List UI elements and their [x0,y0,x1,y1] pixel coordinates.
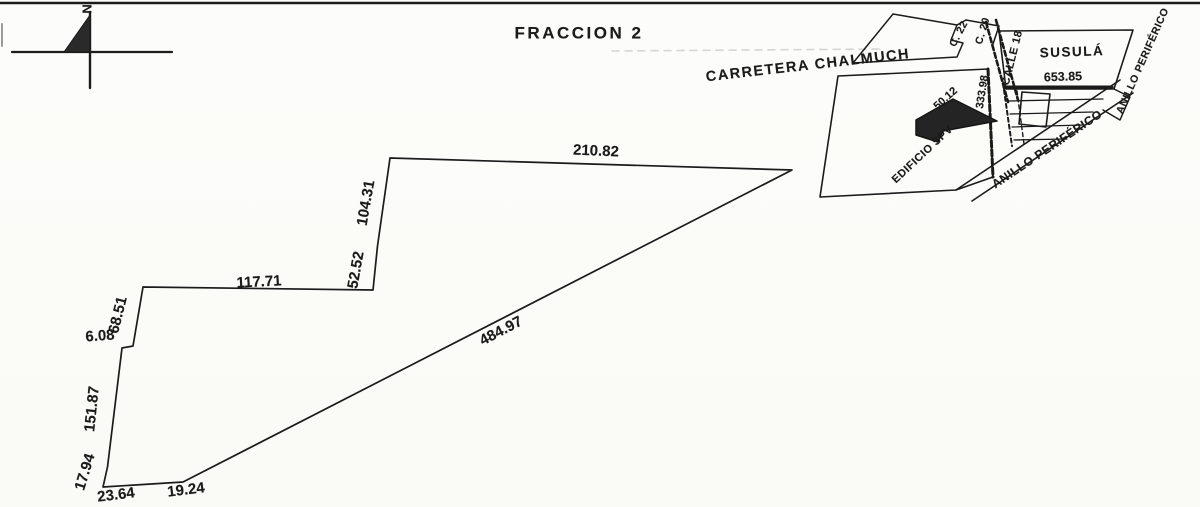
measurement-west-shelf: 117.71 [236,273,282,290]
measurement-north: 210.82 [573,143,620,160]
inset-inner-block [1019,92,1050,127]
measurement-west-jog: 6.08 [85,327,115,344]
dimension-susula-frontage: 653.85 [1044,70,1083,84]
page-title: FRACCION 2 [515,25,644,42]
north-arrow-head [64,15,90,52]
place-label-susula: SUSULÁ [1040,44,1105,60]
north-label: N [81,4,94,13]
scan-smudge-line [612,49,882,51]
survey-plan-sheet: FRACCION 2 N 210.82 104.31 52.52 117.71 … [0,0,1200,507]
inset-inner-boundary [1017,91,1024,144]
lot-strip-line [1010,112,1093,114]
plan-linework [0,0,1200,507]
parcel-boundary [103,158,792,487]
measurement-south-west: 23.64 [96,485,135,504]
measurement-south-east: 19.24 [166,480,205,499]
